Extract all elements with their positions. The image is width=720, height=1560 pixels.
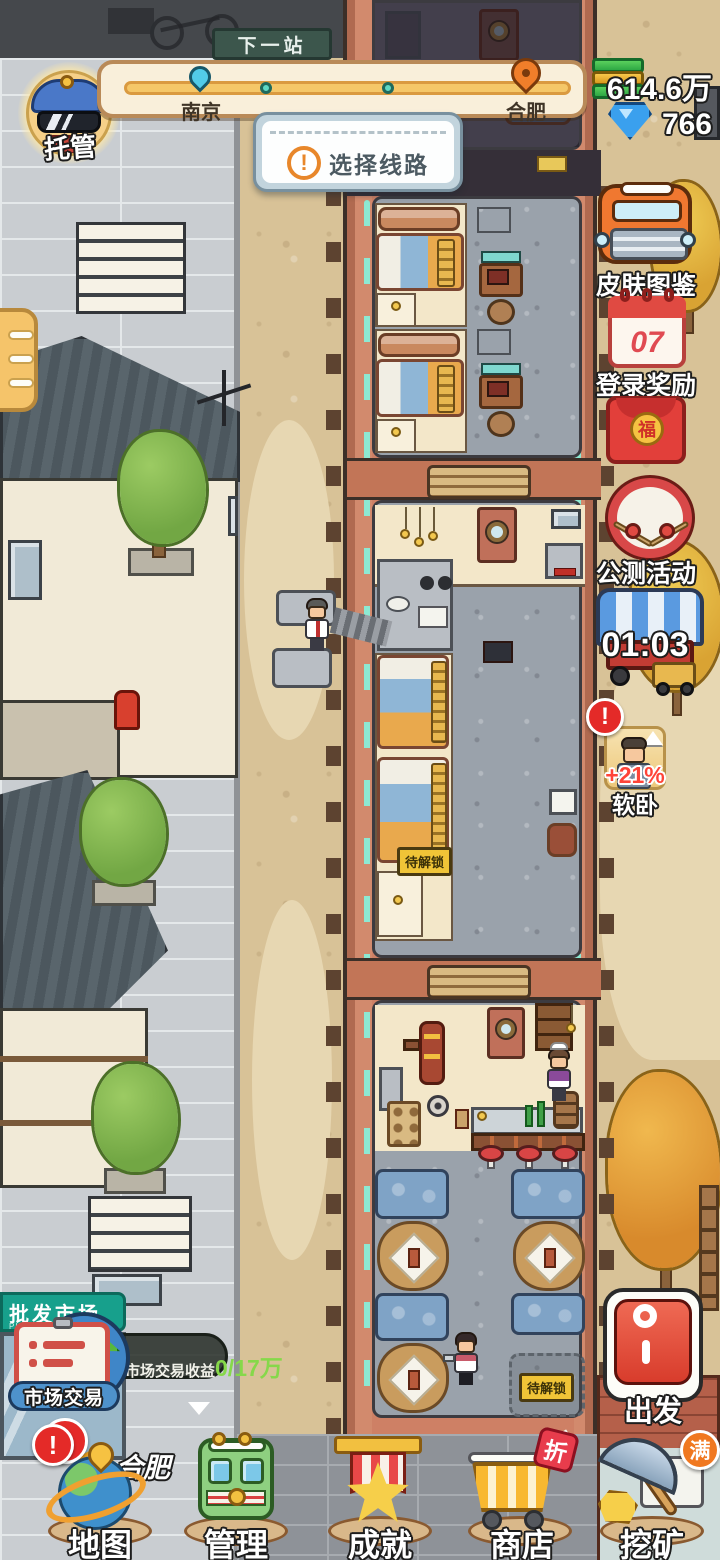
train-car-sleeper: 待解锁	[372, 500, 582, 958]
gangway-bellows	[427, 965, 531, 999]
wood-ladder	[699, 1185, 719, 1311]
locked-bed-sign[interactable]: 待解锁	[397, 847, 452, 876]
station-dot	[382, 82, 394, 94]
train-window-lights	[364, 200, 370, 1410]
switch-ring	[633, 1304, 657, 1328]
sofa	[378, 207, 460, 231]
tv-antenna	[222, 370, 226, 426]
desk-chair	[487, 411, 515, 437]
dining-table	[377, 1343, 449, 1413]
wood-beam	[0, 1056, 148, 1062]
green-bottle	[525, 1105, 533, 1127]
red-envelope-button[interactable]: 福	[606, 396, 686, 464]
building-base	[0, 700, 120, 780]
game-scene: 下一站	[0, 0, 720, 1560]
origin-station-label: 南京	[169, 96, 233, 125]
tooltip-pointer	[188, 1402, 210, 1415]
gold-band	[424, 1034, 440, 1039]
desk-chair	[487, 299, 515, 325]
ornate-door	[387, 1101, 421, 1147]
sofa	[378, 333, 460, 357]
select-route-prompt[interactable]: ! 选择线路	[253, 112, 463, 192]
car-door	[477, 507, 517, 563]
cart-wheel	[680, 682, 694, 696]
lamp-stem	[433, 507, 435, 531]
nav-achievement-label: 成就	[330, 1520, 430, 1560]
pendant-lamp	[566, 1023, 576, 1033]
bicycle	[150, 16, 184, 50]
oil-lamp	[391, 301, 401, 311]
side-menu-button[interactable]	[0, 308, 38, 412]
dining-booth	[511, 1293, 585, 1335]
sand-patch	[244, 420, 334, 740]
switch-bar	[642, 1340, 650, 1364]
gem-amount: 766	[560, 108, 712, 142]
prompt-dashed-line	[270, 131, 446, 134]
passenger-face	[623, 747, 645, 763]
oil-lamp	[391, 427, 401, 437]
dining-table	[377, 1221, 449, 1291]
train-icon	[198, 1438, 274, 1520]
pendant-lamp	[414, 537, 424, 547]
bed-ladder	[431, 763, 447, 855]
willow-tree	[82, 780, 166, 884]
oil-lamp	[393, 895, 403, 905]
dining-booth	[511, 1169, 585, 1219]
station-dot	[260, 82, 272, 94]
bed-ladder	[437, 365, 455, 413]
beta-event-button[interactable]	[608, 478, 692, 558]
mirror	[551, 509, 581, 529]
coat-rack	[477, 207, 511, 233]
medal-bar	[334, 1436, 422, 1454]
nav-map-label: 地图	[50, 1520, 150, 1560]
computer-monitor	[487, 269, 509, 285]
kitchen-unit	[377, 559, 453, 651]
dining-booth	[375, 1293, 449, 1341]
locked-booth-sign[interactable]: 待解锁	[519, 1373, 574, 1402]
burner	[438, 576, 452, 590]
nav-shop-button[interactable]: 折 商店	[452, 1428, 592, 1560]
pickaxe-head	[597, 1425, 690, 1496]
washing-machine	[549, 789, 577, 815]
desk-screen	[481, 363, 521, 375]
door-mat	[537, 156, 567, 172]
dining-table	[513, 1221, 585, 1291]
window	[8, 540, 42, 600]
waitress-dining	[451, 1332, 481, 1390]
next-station-board: 下一站	[212, 28, 332, 60]
nav-manage-label: 管理	[186, 1520, 286, 1560]
armchair	[547, 823, 577, 857]
train: 头等座 待解锁	[343, 0, 597, 1434]
depart-button[interactable]	[603, 1288, 703, 1402]
bed-ladder	[431, 661, 447, 743]
businessman	[302, 598, 332, 656]
buff-label: 软卧	[592, 786, 678, 820]
sink	[386, 596, 410, 612]
market-income-value: 0/17万	[215, 1349, 283, 1383]
bed-ladder	[437, 239, 455, 287]
rail-ties-left	[326, 150, 341, 1434]
serving-tray	[443, 1354, 455, 1362]
dartboard	[427, 1095, 449, 1117]
route-progress-bar: 南京 合肥	[97, 60, 587, 118]
destination-station-label: 合肥	[494, 96, 558, 125]
samovar-boiler	[419, 1021, 445, 1085]
nav-manage-button[interactable]: 管理	[168, 1430, 304, 1560]
oil-lamp	[477, 1111, 487, 1121]
cart-icon	[472, 1462, 552, 1512]
buff-alert-badge: !	[586, 698, 624, 736]
bar-stool[interactable]	[478, 1145, 504, 1162]
train-car-first	[372, 196, 582, 458]
fu-coin: 福	[630, 412, 664, 446]
market-income-label: 市场交易收益	[125, 1360, 215, 1381]
bar-stool[interactable]	[552, 1145, 578, 1162]
nav-mining-button[interactable]: 满 挖矿	[588, 1424, 720, 1560]
car-connector	[347, 458, 601, 500]
cart-wheel	[656, 682, 670, 696]
gangway-bellows	[427, 465, 531, 499]
bar-stool[interactable]	[516, 1145, 542, 1162]
dining-booth	[375, 1169, 449, 1219]
picture-frame	[455, 1109, 469, 1129]
pendant-lamp	[400, 529, 410, 539]
car-connector	[347, 958, 601, 1000]
beta-event-label: 公测活动	[576, 554, 716, 590]
coat-rack	[477, 329, 511, 355]
alert-icon: !	[287, 146, 321, 180]
login-day: 07	[612, 326, 682, 360]
balcony-window	[76, 222, 186, 314]
lamp-stem	[571, 1005, 573, 1025]
balcony-window	[88, 1196, 192, 1272]
burner	[420, 576, 434, 590]
login-reward-button[interactable]: 07	[608, 296, 686, 368]
nav-achievement-button[interactable]: 成就	[312, 1428, 448, 1560]
pendant-lamp	[428, 531, 438, 541]
nav-shop-label: 商店	[470, 1520, 574, 1560]
car-door	[487, 1007, 525, 1059]
nav-map-button[interactable]: ! 地图	[30, 1424, 170, 1560]
market-trade-label-pill[interactable]: 市场交易	[8, 1381, 120, 1411]
small-door	[418, 606, 448, 628]
red-plate	[554, 568, 576, 576]
avatar-label: 托管	[19, 125, 121, 169]
wall-tv	[483, 641, 513, 663]
sand-patch	[252, 900, 332, 1260]
willow-tree	[120, 432, 206, 544]
desk-screen	[481, 251, 521, 263]
truck-wheel	[610, 666, 630, 686]
skin-collection-button[interactable]	[598, 184, 692, 264]
cart-box	[108, 8, 154, 34]
willow-tree	[94, 1064, 178, 1172]
buff-percent: +21%	[592, 762, 678, 789]
prompt-label: 选择线路	[329, 146, 429, 180]
chef-hat	[550, 1042, 568, 1050]
kerb	[234, 58, 240, 1560]
fire-hydrant	[114, 690, 140, 730]
lamp-stem	[419, 507, 421, 537]
nav-mining-label: 挖矿	[602, 1520, 702, 1560]
mining-full-badge: 满	[680, 1430, 720, 1470]
window	[228, 496, 238, 536]
market-trade-label: 市场交易	[24, 1383, 104, 1410]
gold-band	[424, 1054, 440, 1059]
lamp-stem	[405, 507, 407, 529]
computer-monitor	[487, 381, 509, 397]
cap-badge	[60, 75, 74, 89]
map-alert-badge: !	[32, 1424, 74, 1466]
waitress-bar	[544, 1048, 574, 1106]
truck-timer: 01:03	[580, 626, 710, 665]
